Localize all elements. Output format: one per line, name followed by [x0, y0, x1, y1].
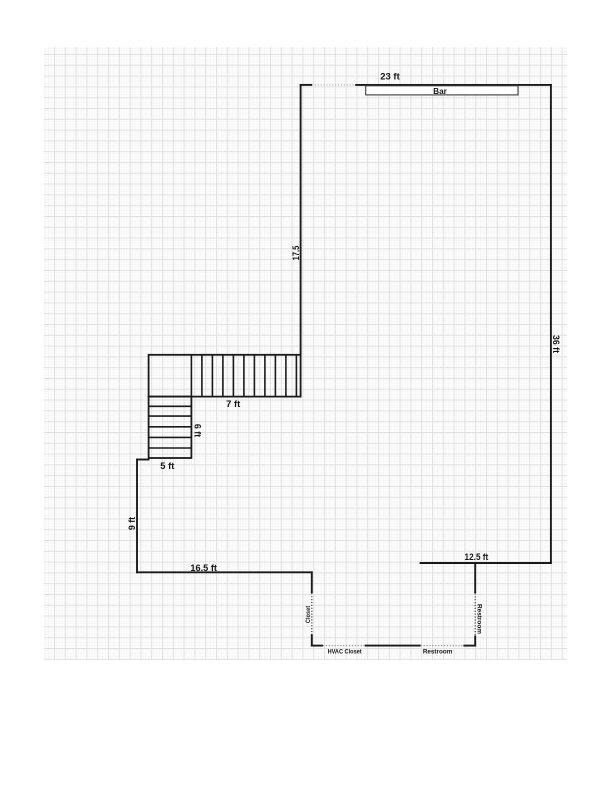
svg-text:7 ft: 7 ft: [226, 399, 240, 409]
svg-text:17.5: 17.5: [291, 246, 301, 261]
svg-text:Closet: Closet: [306, 606, 312, 623]
svg-text:HVAC Closet: HVAC Closet: [328, 650, 362, 656]
svg-text:9 ft: 9 ft: [127, 517, 137, 530]
svg-text:6 ft: 6 ft: [192, 424, 202, 437]
svg-text:Bar: Bar: [433, 86, 447, 96]
svg-text:12.5 ft: 12.5 ft: [465, 552, 489, 562]
svg-text:16.5 ft: 16.5 ft: [190, 563, 217, 573]
svg-text:Restroom: Restroom: [423, 650, 453, 656]
svg-text:Restroom: Restroom: [476, 604, 482, 634]
svg-text:23 ft: 23 ft: [380, 71, 400, 81]
svg-text:5 ft: 5 ft: [160, 461, 174, 471]
svg-text:36 ft: 36 ft: [551, 335, 561, 353]
